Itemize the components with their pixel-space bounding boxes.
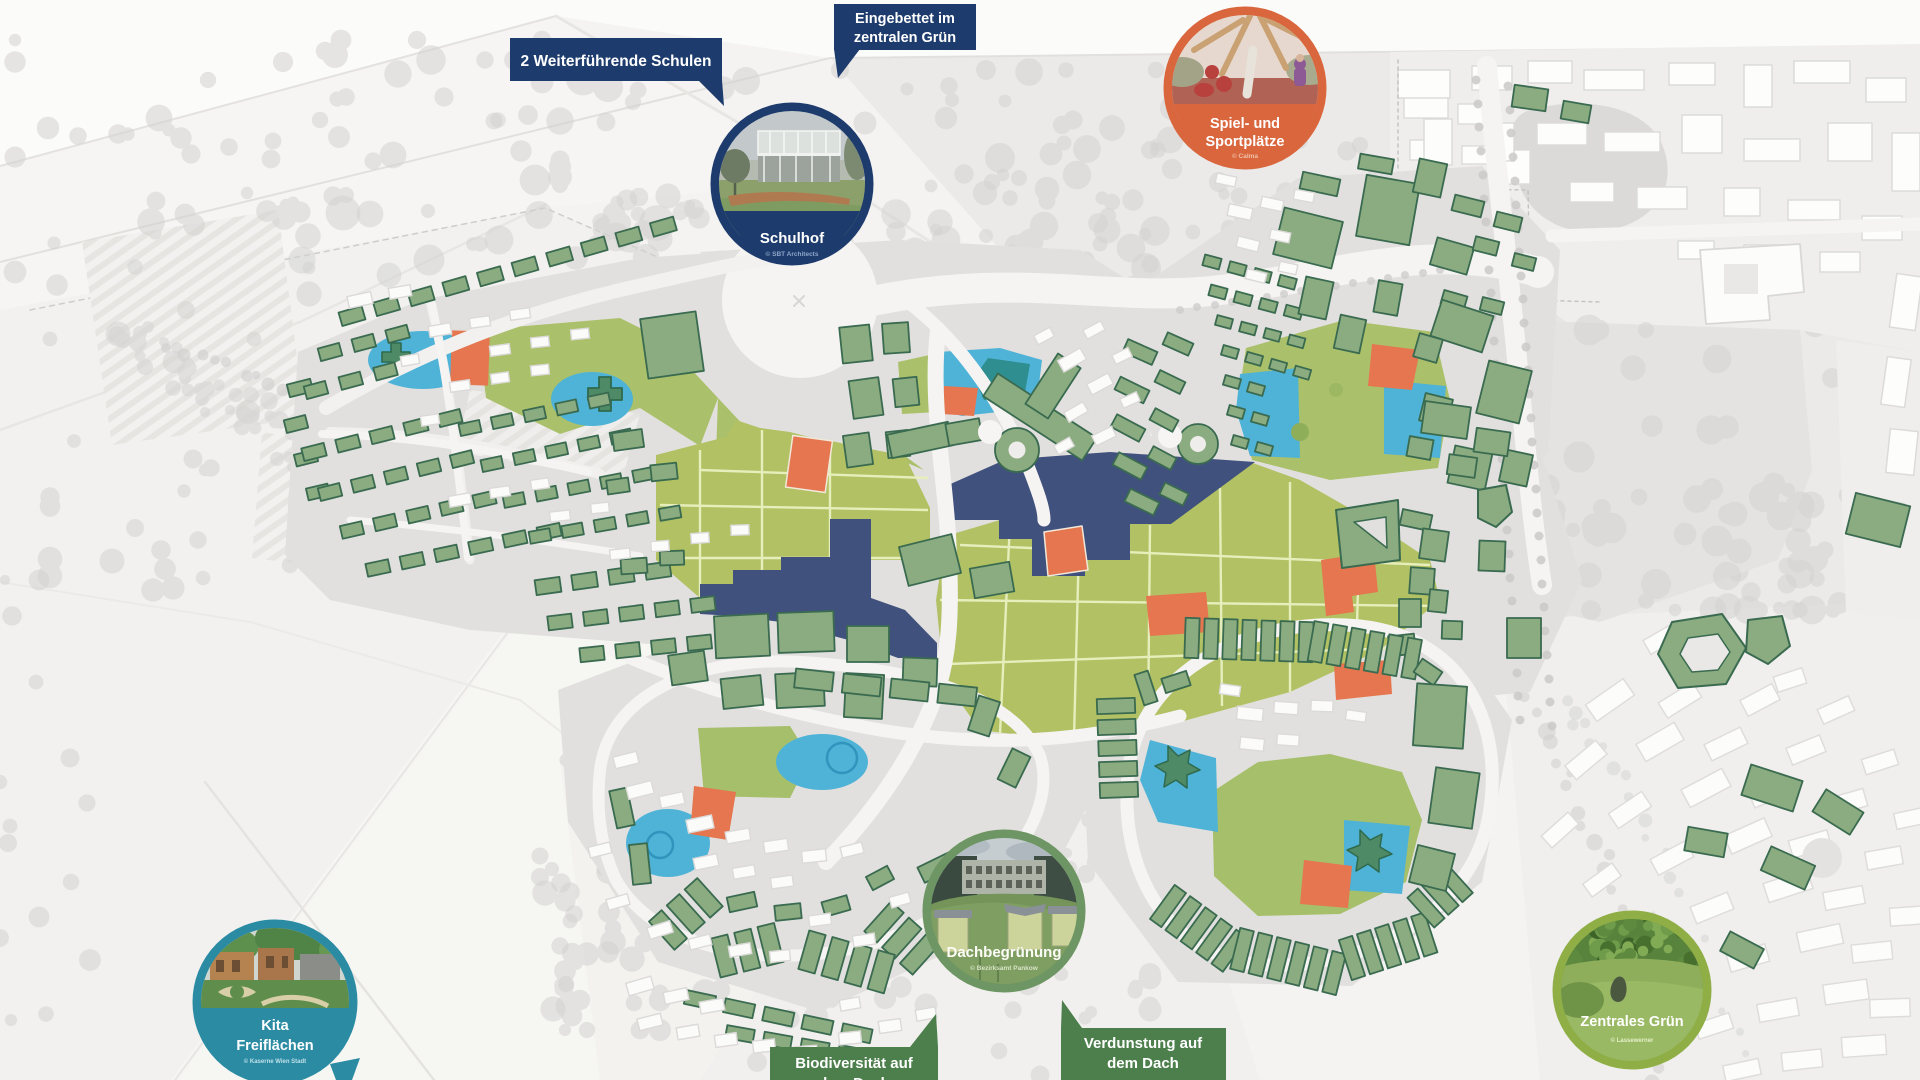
svg-text:© Calma: © Calma <box>1232 152 1258 160</box>
svg-text:Eingebettet im: Eingebettet im <box>855 11 955 27</box>
svg-text:Verdunstung auf: Verdunstung auf <box>1084 1035 1203 1052</box>
svg-text:Kita: Kita <box>261 1018 289 1034</box>
svg-text:Biodiversität auf: Biodiversität auf <box>795 1055 914 1072</box>
svg-text:2 Weiterführende Schulen: 2 Weiterführende Schulen <box>521 53 712 70</box>
svg-text:zentralen Grün: zentralen Grün <box>854 30 956 46</box>
svg-text:Dachbegrünung: Dachbegrünung <box>947 944 1062 961</box>
svg-text:dem Dach: dem Dach <box>818 1075 890 1080</box>
svg-text:Schulhof: Schulhof <box>760 230 825 247</box>
svg-text:Spiel- und: Spiel- und <box>1210 116 1280 132</box>
svg-text:dem Dach: dem Dach <box>1107 1055 1179 1072</box>
svg-text:© Kaserne Wien Stadt: © Kaserne Wien Stadt <box>244 1058 306 1065</box>
svg-text:© Bezirksamt Pankow: © Bezirksamt Pankow <box>970 964 1039 972</box>
svg-text:Sportplätze: Sportplätze <box>1206 134 1285 150</box>
svg-text:© SBT Architects: © SBT Architects <box>766 250 819 258</box>
svg-text:Freiflächen: Freiflächen <box>236 1038 313 1054</box>
svg-text:© Lassewerner: © Lassewerner <box>1611 1037 1654 1044</box>
svg-text:Zentrales Grün: Zentrales Grün <box>1580 1014 1683 1030</box>
